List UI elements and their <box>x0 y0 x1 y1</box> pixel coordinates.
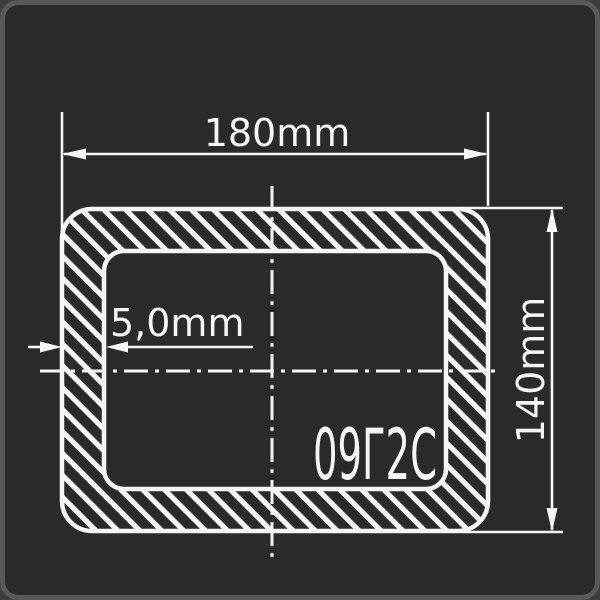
tube-cross-section-drawing: 09Г2С 180mm 140mm 5,0mm <box>0 0 600 600</box>
thickness-dimension-label: 5,0mm <box>110 301 244 345</box>
drawing-page: 09Г2С 180mm 140mm 5,0mm <box>0 0 600 600</box>
steel-grade-label: 09Г2С <box>313 414 437 496</box>
height-dimension-label: 140mm <box>509 297 553 444</box>
width-dimension-label: 180mm <box>204 111 351 155</box>
